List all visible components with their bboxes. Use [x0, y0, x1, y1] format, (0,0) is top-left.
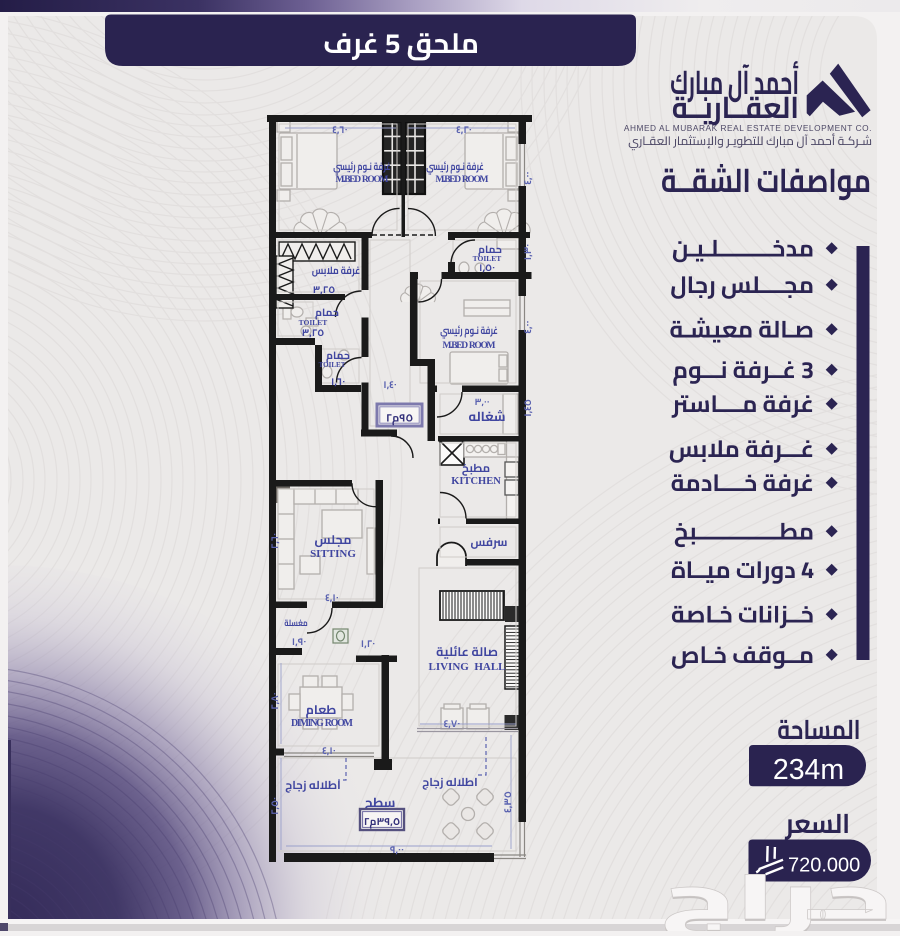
svg-text:DIMING ROOM: DIMING ROOM [291, 718, 354, 729]
svg-text:TOILET: TOILET [473, 254, 502, 263]
svg-text:KITCHEN: KITCHEN [451, 476, 501, 487]
svg-text:SITTING: SITTING [310, 548, 356, 560]
svg-text:M.BED ROOM: M.BED ROOM [436, 175, 489, 185]
svg-text:AHMED AL MUBARAK REAL ESTATE D: AHMED AL MUBARAK REAL ESTATE DEVELOPMENT… [624, 123, 872, 133]
svg-text:TOILET: TOILET [299, 318, 328, 327]
svg-text:LIVING HALL: LIVING HALL [428, 661, 505, 673]
svg-text:234m: 234m [773, 754, 844, 786]
svg-text:TOILET: TOILET [319, 361, 346, 369]
svg-text:M.BED ROOM: M.BED ROOM [443, 341, 496, 351]
svg-text:M.BED ROOM: M.BED ROOM [336, 175, 389, 185]
svg-text:720.000: 720.000 [788, 855, 860, 877]
